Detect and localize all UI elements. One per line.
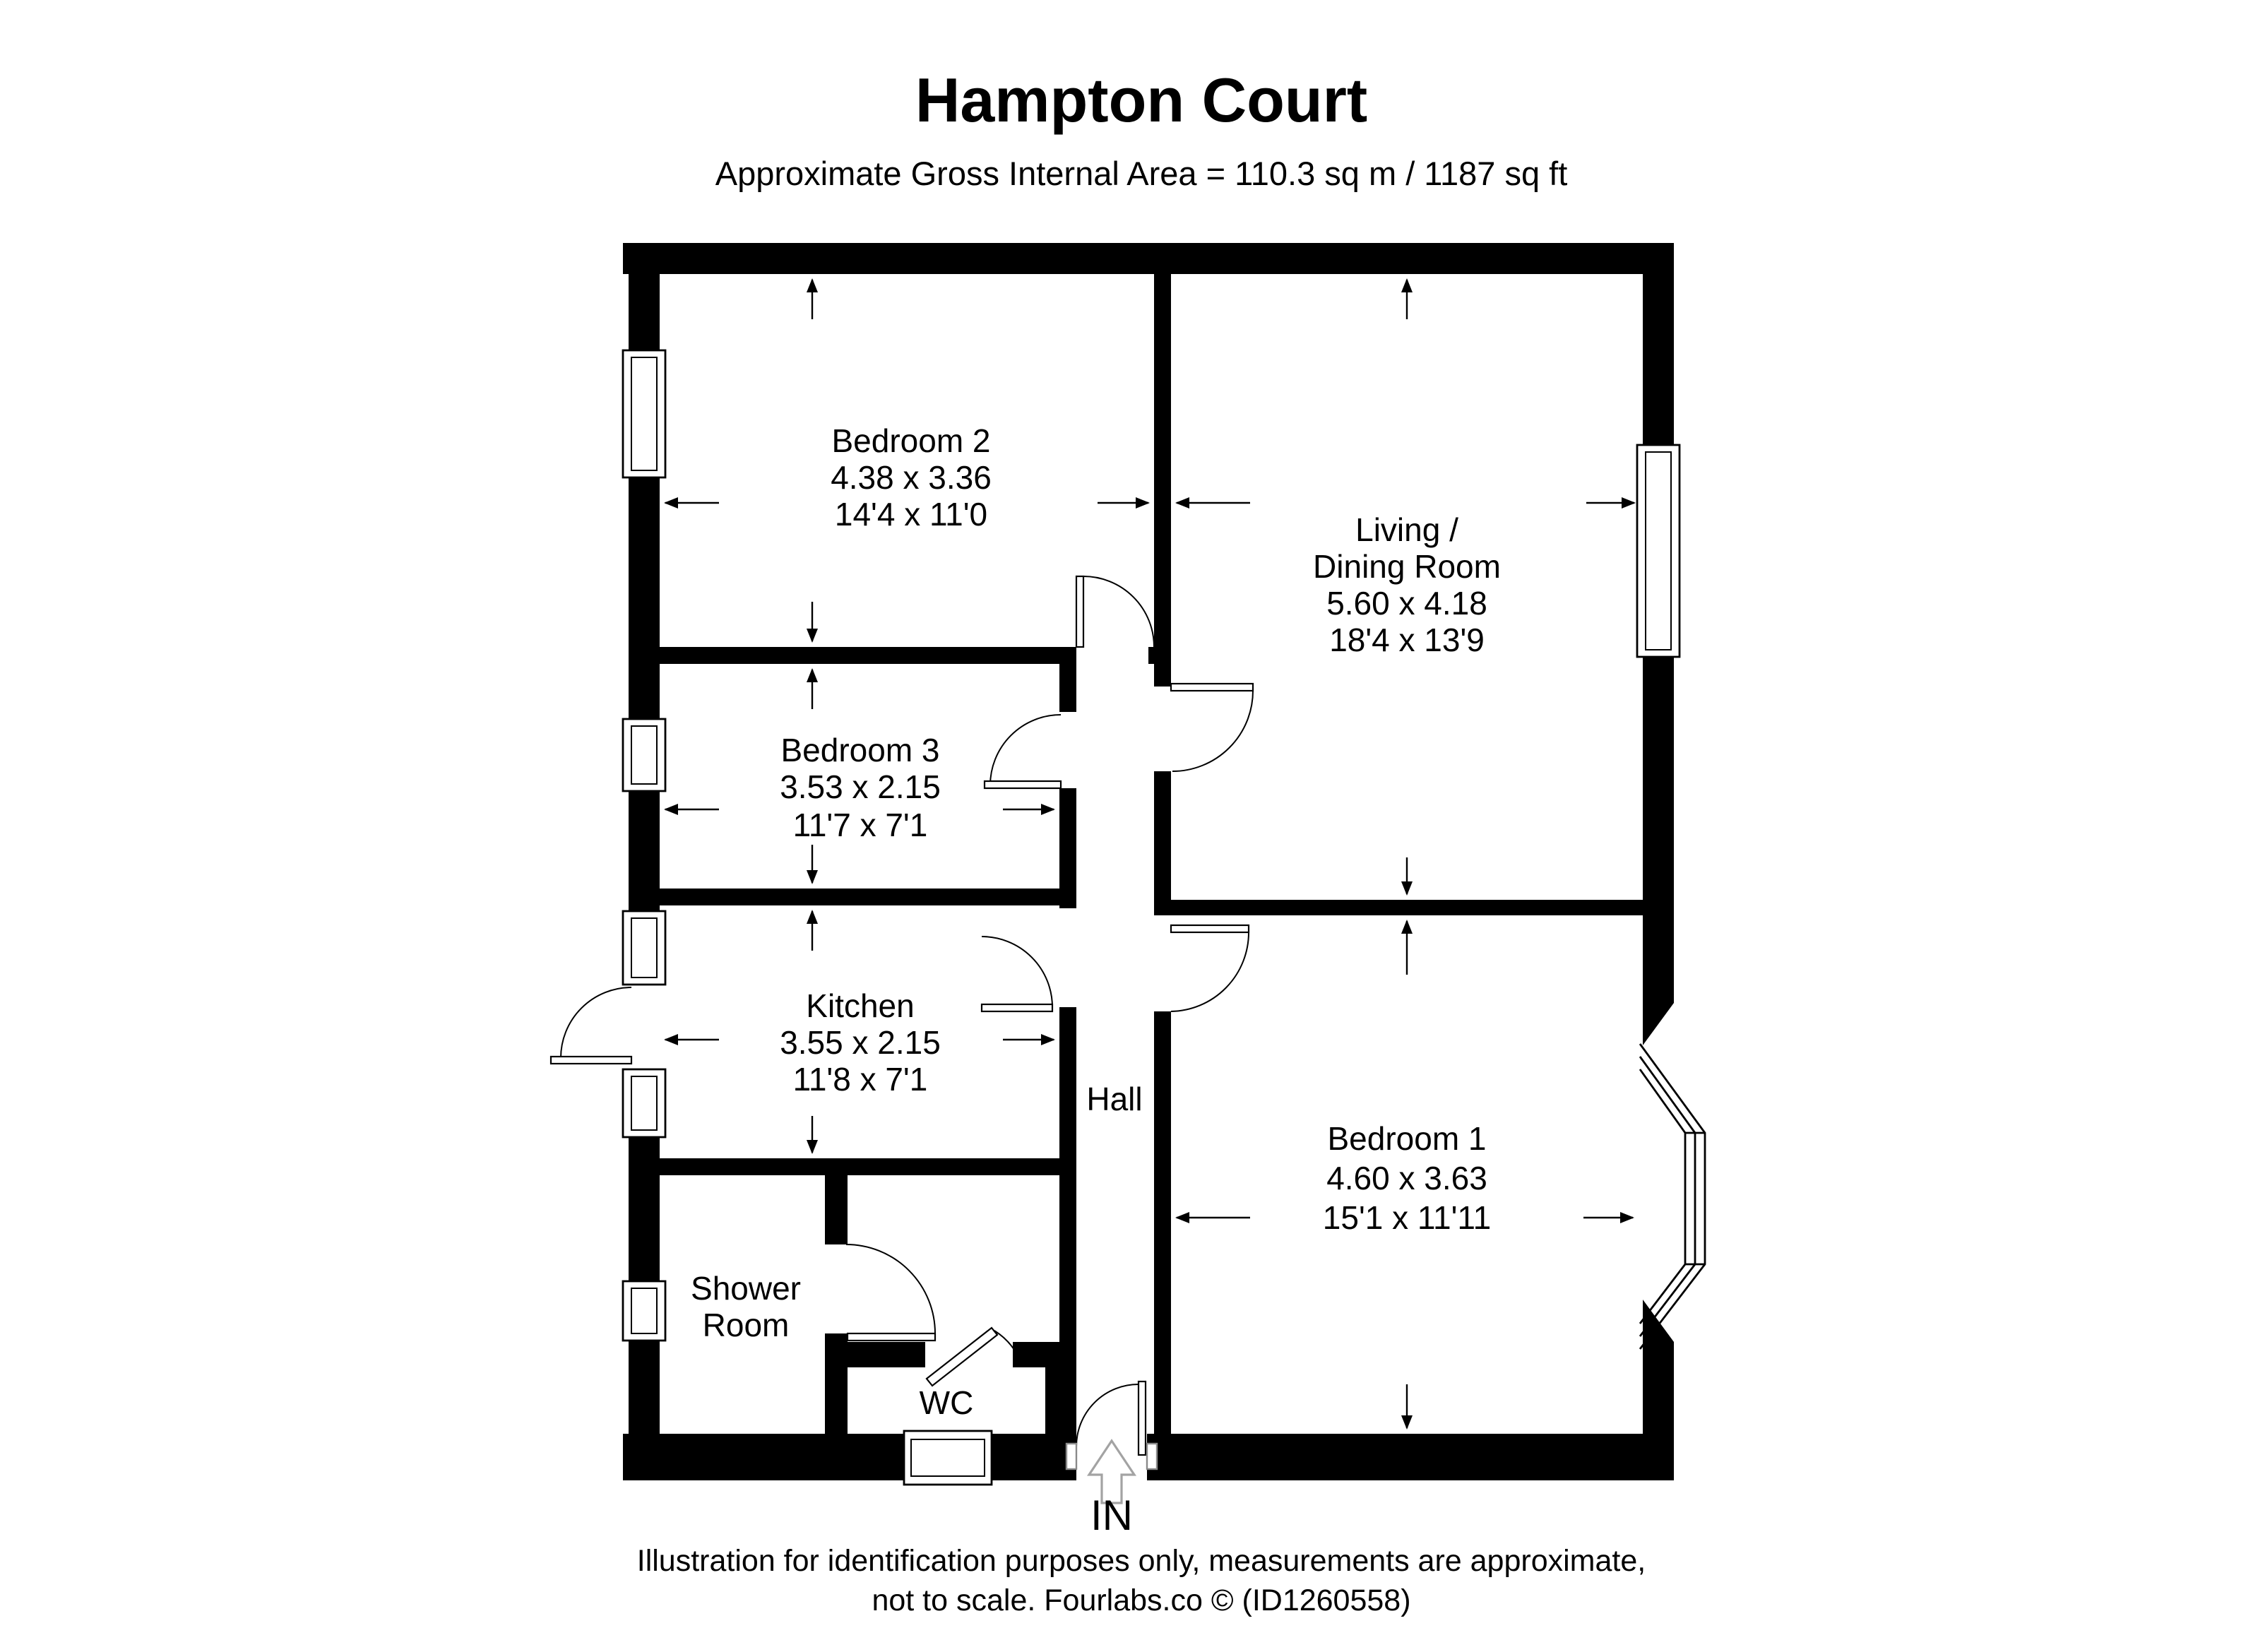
kitchen-window-lower <box>623 1069 665 1137</box>
kitchen-label: Kitchen 3.55 x 2.15 11'8 x 7'1 <box>780 987 941 1098</box>
living-room-window <box>1637 445 1680 657</box>
shower-room-window <box>623 1281 665 1341</box>
bedroom1-metric: 4.60 x 3.63 <box>1326 1160 1487 1196</box>
wall-left-seg2 <box>629 477 660 719</box>
bedroom1-label: Bedroom 1 4.60 x 3.63 15'1 x 11'11 <box>1323 1120 1491 1236</box>
bedroom3-door <box>985 715 1061 788</box>
bedroom3-metric: 3.53 x 2.15 <box>780 768 941 805</box>
kitchen-metric: 3.55 x 2.15 <box>780 1024 941 1061</box>
floor-plan-page: Hampton Court Approximate Gross Internal… <box>0 0 2253 1652</box>
wall-left-seg1 <box>629 243 660 350</box>
wall-hall-junction-block <box>1148 647 1171 664</box>
bedroom3-imperial: 11'7 x 7'1 <box>793 807 928 843</box>
living-imperial: 18'4 x 13'9 <box>1329 622 1485 658</box>
footer-line2: not to scale. Fourlabs.co © (ID1260558) <box>872 1583 1410 1617</box>
entrance-in-label: IN <box>1090 1492 1133 1539</box>
wall-right-bay-bottom-wedge <box>1643 1300 1674 1342</box>
shower-name-line2: Room <box>703 1307 790 1343</box>
bedroom1-door <box>1171 925 1249 1011</box>
floor-plan-canvas: Hampton Court Approximate Gross Internal… <box>0 0 2253 1652</box>
wall-right-seg1 <box>1643 243 1674 445</box>
entrance-sill-left <box>1066 1444 1076 1469</box>
bedroom1-imperial: 15'1 x 11'11 <box>1323 1199 1491 1236</box>
bedroom2-door <box>1076 576 1154 647</box>
bedroom1-name: Bedroom 1 <box>1327 1120 1486 1157</box>
bedroom3-window <box>623 719 665 791</box>
kitchen-imperial: 11'8 x 7'1 <box>793 1061 928 1098</box>
wall-top <box>623 243 1674 274</box>
wall-bed3-kitchen-divider <box>629 889 1076 905</box>
dimension-arrows <box>665 280 1634 1428</box>
living-name-line1: Living / <box>1355 511 1458 548</box>
bedroom2-imperial: 14'4 x 11'0 <box>835 496 987 533</box>
wc-window <box>904 1431 992 1485</box>
wall-hall-left-seg1 <box>1059 664 1076 712</box>
bedroom2-label: Bedroom 2 4.38 x 3.36 14'4 x 11'0 <box>831 422 992 533</box>
living-metric: 5.60 x 4.18 <box>1326 585 1487 622</box>
living-room-label: Living / Dining Room 5.60 x 4.18 18'4 x … <box>1313 511 1501 658</box>
wall-hall-right-seg2 <box>1154 1011 1171 1434</box>
wall-kitchen-shower-divider <box>629 1158 1076 1175</box>
bedroom3-name: Bedroom 3 <box>780 732 939 768</box>
hall-label: Hall <box>1086 1081 1142 1117</box>
wall-hall-left-seg3 <box>1059 1007 1076 1342</box>
wall-bed2-living-divider <box>1154 274 1171 687</box>
wc-door <box>927 1328 1021 1386</box>
bedroom1-bay-window <box>1640 1044 1705 1349</box>
wall-bed2-bed3-divider <box>629 647 1076 664</box>
wall-bottom-seg3 <box>1147 1434 1674 1480</box>
shower-room-label: Shower Room <box>691 1270 801 1343</box>
wall-right-seg2 <box>1643 657 1674 1003</box>
wall-shower-right-seg1 <box>825 1175 848 1244</box>
entrance-sill-right <box>1147 1444 1157 1469</box>
page-subtitle: Approximate Gross Internal Area = 110.3 … <box>715 155 1568 192</box>
wc-label: WC <box>920 1384 974 1421</box>
wall-right-bay-top-wedge <box>1643 1003 1674 1045</box>
shower-name-line1: Shower <box>691 1270 801 1307</box>
shower-room-door <box>846 1244 935 1341</box>
wall-hall-right-seg1 <box>1154 771 1171 900</box>
wall-wc-top-seg1 <box>825 1342 925 1367</box>
kitchen-door <box>982 937 1052 1011</box>
wall-living-bed1-divider <box>1154 900 1643 915</box>
kitchen-external-door <box>551 987 631 1064</box>
bedroom3-label: Bedroom 3 3.53 x 2.15 11'7 x 7'1 <box>780 732 941 843</box>
bedroom2-name: Bedroom 2 <box>831 422 990 459</box>
wall-hall-left-seg2 <box>1059 788 1076 908</box>
footer-line1: Illustration for identification purposes… <box>637 1544 1646 1578</box>
living-room-door <box>1171 684 1253 771</box>
page-title: Hampton Court <box>915 65 1367 135</box>
kitchen-name: Kitchen <box>806 987 914 1024</box>
bedroom2-window <box>623 350 665 477</box>
bedroom2-metric: 4.38 x 3.36 <box>831 459 992 496</box>
kitchen-window-upper <box>623 911 665 985</box>
living-name-line2: Dining Room <box>1313 548 1501 585</box>
wall-bottom-seg1 <box>623 1434 904 1480</box>
